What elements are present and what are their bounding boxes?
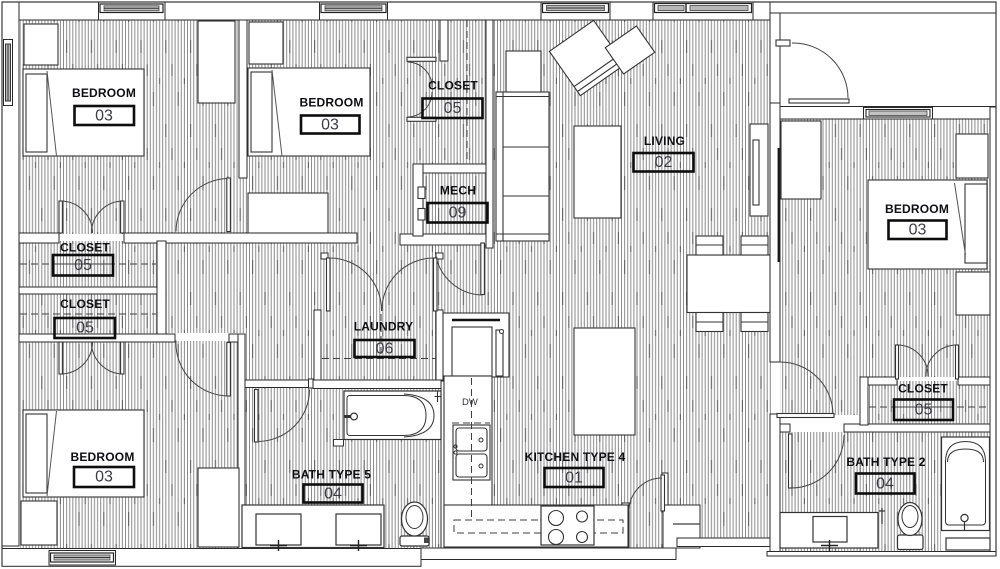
svg-text:04: 04 <box>324 486 342 503</box>
svg-text:06: 06 <box>376 341 394 358</box>
svg-text:CLOSET: CLOSET <box>898 382 948 396</box>
svg-text:LIVING: LIVING <box>644 134 685 148</box>
svg-text:05: 05 <box>915 402 933 419</box>
svg-text:05: 05 <box>76 320 94 337</box>
svg-text:CLOSET: CLOSET <box>428 79 478 93</box>
svg-text:05: 05 <box>74 257 92 274</box>
svg-text:01: 01 <box>565 470 583 487</box>
svg-text:BATH TYPE 5: BATH TYPE 5 <box>292 468 371 482</box>
svg-text:MECH: MECH <box>440 184 476 198</box>
svg-text:CLOSET: CLOSET <box>60 297 110 311</box>
svg-text:02: 02 <box>655 154 673 171</box>
svg-text:BATH TYPE 2: BATH TYPE 2 <box>846 455 925 469</box>
svg-text:BEDROOM: BEDROOM <box>299 96 363 110</box>
svg-text:LAUNDRY: LAUNDRY <box>354 320 414 334</box>
svg-text:BEDROOM: BEDROOM <box>70 450 134 464</box>
svg-text:05: 05 <box>444 100 462 117</box>
svg-text:CLOSET: CLOSET <box>60 241 110 255</box>
svg-text:BEDROOM: BEDROOM <box>72 86 136 100</box>
svg-text:KITCHEN TYPE 4: KITCHEN TYPE 4 <box>525 450 626 464</box>
svg-text:04: 04 <box>876 476 894 493</box>
svg-text:03: 03 <box>95 108 113 125</box>
svg-text:03: 03 <box>321 117 339 134</box>
svg-text:09: 09 <box>449 205 467 222</box>
svg-text:BEDROOM: BEDROOM <box>885 202 949 216</box>
svg-text:DW: DW <box>462 397 478 408</box>
svg-text:03: 03 <box>95 469 113 486</box>
svg-text:03: 03 <box>909 222 927 239</box>
